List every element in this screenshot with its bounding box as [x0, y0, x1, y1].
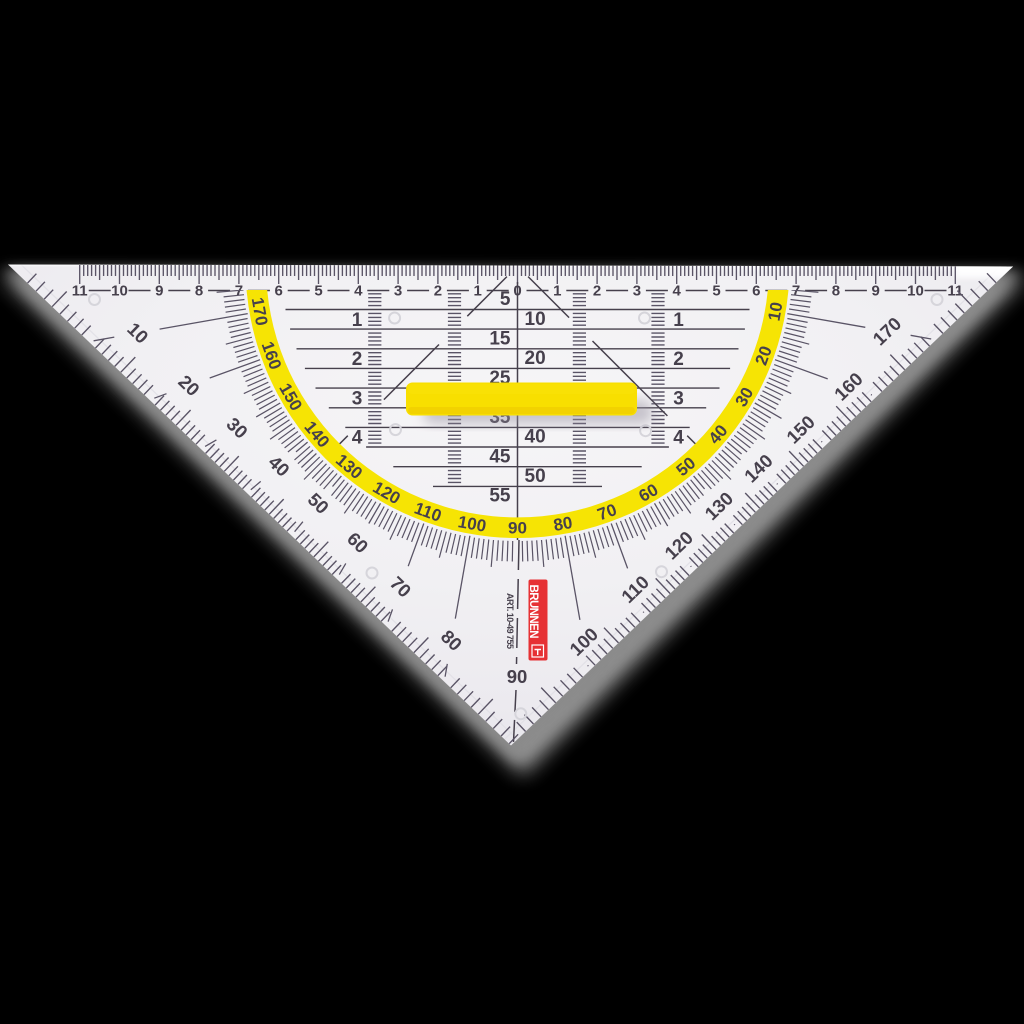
- svg-text:3: 3: [673, 388, 684, 409]
- svg-text:5: 5: [500, 289, 511, 310]
- svg-text:6: 6: [275, 283, 283, 300]
- svg-text:3: 3: [352, 388, 363, 409]
- svg-text:ART. 10-49 755: ART. 10-49 755: [505, 593, 515, 649]
- svg-text:2: 2: [593, 283, 601, 300]
- svg-text:10: 10: [525, 309, 546, 330]
- svg-text:10: 10: [111, 283, 128, 300]
- svg-text:6: 6: [752, 283, 760, 300]
- svg-text:5: 5: [712, 283, 720, 300]
- svg-text:10: 10: [907, 283, 924, 300]
- svg-text:2: 2: [352, 349, 363, 370]
- svg-text:55: 55: [489, 486, 511, 507]
- svg-text:2: 2: [673, 349, 684, 370]
- svg-text:45: 45: [489, 446, 511, 467]
- svg-text:11: 11: [72, 283, 88, 300]
- svg-text:90: 90: [507, 666, 528, 687]
- svg-text:4: 4: [673, 283, 682, 300]
- svg-text:50: 50: [525, 466, 546, 487]
- svg-text:5: 5: [314, 283, 322, 300]
- svg-text:90: 90: [508, 519, 527, 538]
- svg-text:11: 11: [947, 283, 963, 300]
- svg-text:3: 3: [633, 283, 641, 300]
- svg-text:20: 20: [525, 348, 546, 369]
- svg-text:9: 9: [872, 283, 880, 300]
- svg-text:2: 2: [434, 283, 442, 300]
- svg-text:4: 4: [352, 428, 363, 449]
- svg-text:15: 15: [489, 328, 511, 349]
- svg-text:3: 3: [394, 283, 402, 300]
- svg-text:4: 4: [354, 283, 363, 300]
- svg-text:1: 1: [352, 310, 363, 331]
- svg-text:9: 9: [155, 283, 163, 300]
- svg-text:1: 1: [474, 283, 482, 300]
- svg-text:80: 80: [552, 513, 574, 535]
- svg-text:1: 1: [553, 283, 561, 300]
- svg-text:10: 10: [764, 301, 786, 323]
- svg-text:8: 8: [832, 283, 840, 300]
- svg-text:8: 8: [195, 283, 203, 300]
- svg-text:1: 1: [673, 310, 684, 331]
- svg-text:4: 4: [673, 428, 684, 449]
- svg-text:40: 40: [525, 427, 546, 448]
- svg-text:BRUNNEN: BRUNNEN: [527, 585, 539, 639]
